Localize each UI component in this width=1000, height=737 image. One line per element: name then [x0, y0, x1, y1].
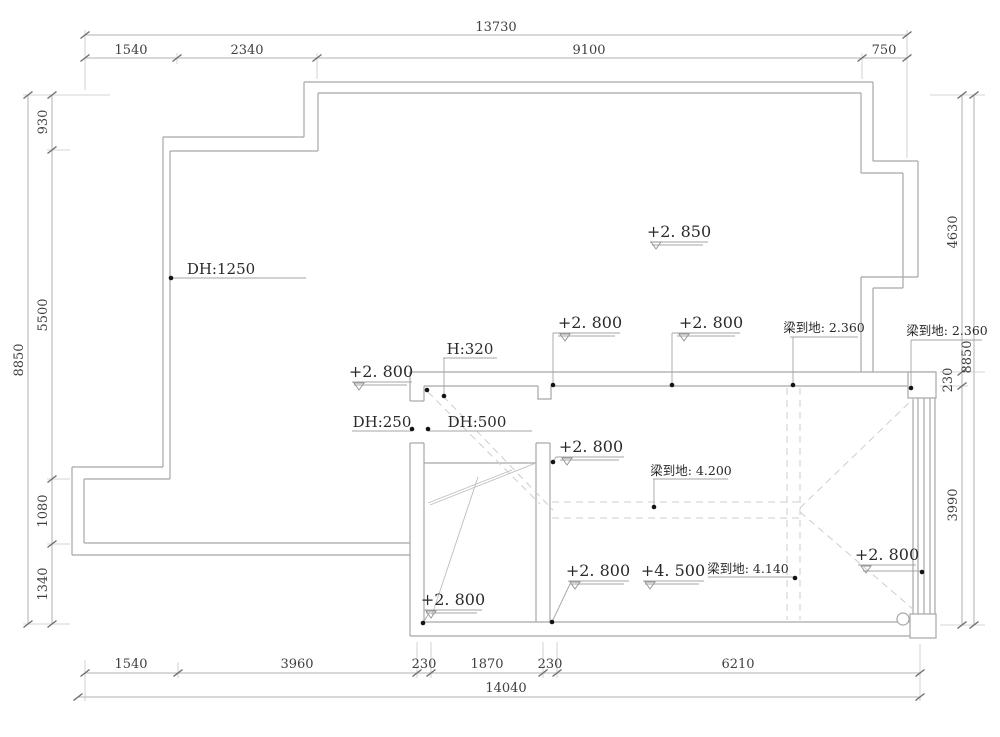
dim-left-overall: 8850 [12, 343, 27, 376]
dim-top-seg-3: 9100 [572, 43, 605, 58]
column-pier [908, 372, 936, 398]
label-beam-4140: 梁到地: 4.140 [707, 561, 789, 576]
leader-dot [670, 383, 675, 388]
annotations: DH:1250 +2. 850 +2. 800 +2. 800 梁到地: 2.3… [169, 222, 988, 625]
dim-left-seg-4: 1340 [36, 567, 51, 600]
dim-top-overall: 13730 [475, 20, 516, 35]
dim-bottom-seg-5: 230 [538, 657, 563, 672]
label-dh-1250: DH:1250 [187, 260, 255, 278]
label-h-320: H:320 [447, 340, 494, 358]
leader-dot [550, 620, 555, 625]
label-elev-2800-d: +2. 800 [559, 437, 623, 456]
dim-left: 8850 930 5500 1080 1340 [12, 92, 110, 628]
dim-right-seg-2: 230 [941, 368, 956, 393]
label-dh-500: DH:500 [448, 413, 507, 431]
dim-top-seg-4: 750 [872, 43, 897, 58]
label-elev-4500: +4. 500 [641, 561, 705, 580]
label-elev-2850: +2. 850 [647, 222, 711, 241]
leader-dot [421, 621, 426, 626]
column-pier [910, 614, 936, 638]
dim-right: 4630 230 3990 8850 [930, 92, 985, 629]
leader-dot [909, 386, 914, 391]
label-elev-2800-c: +2. 800 [349, 362, 413, 381]
label-dh-250: DH:250 [353, 413, 412, 431]
leader-dot [791, 383, 796, 388]
dim-bottom-overall: 14040 [485, 681, 526, 696]
dim-top-seg-1: 1540 [114, 43, 147, 58]
label-beam-2360-a: 梁到地: 2.360 [783, 320, 865, 335]
dim-left-seg-1: 930 [36, 110, 51, 135]
pipe-circle [897, 613, 909, 625]
door-leaf-line [428, 470, 512, 503]
dim-right-overall: 8850 [960, 340, 975, 373]
label-beam-2360-b: 梁到地: 2.360 [906, 323, 988, 338]
dim-bottom-seg-3: 230 [412, 657, 437, 672]
dim-left-seg-2: 5500 [36, 298, 51, 331]
wall-outline [72, 82, 918, 555]
label-beam-4200: 梁到地: 4.200 [650, 463, 732, 478]
dim-bottom: 1540 3960 230 1870 230 6210 14040 [74, 642, 925, 701]
leader-dot [442, 394, 447, 399]
dim-bottom-seg-1: 1540 [114, 657, 147, 672]
dim-left-seg-3: 1080 [36, 494, 51, 527]
wall-notch [538, 386, 551, 399]
dim-bottom-seg-4: 1870 [470, 657, 503, 672]
right-window-wall [897, 372, 936, 638]
label-elev-2800-g: +2. 800 [421, 590, 485, 609]
beam-dashed-line [428, 392, 540, 504]
floor-plan-drawing: 13730 1540 2340 9100 750 1540 3960 230 1… [0, 0, 1000, 737]
floor-plan-canvas: 13730 1540 2340 9100 750 1540 3960 230 1… [0, 0, 1000, 737]
leader-dot [426, 427, 431, 432]
leader-dot [793, 576, 798, 581]
leader-dot [551, 460, 556, 465]
dim-bottom-seg-2: 3960 [280, 657, 313, 672]
dim-right-seg-3: 3990 [946, 488, 961, 521]
leader-dot [920, 570, 925, 575]
dim-bottom-seg-6: 6210 [721, 657, 754, 672]
lower-rooms-walls [410, 372, 936, 636]
dim-right-seg-1: 4630 [946, 215, 961, 248]
label-elev-2800-b: +2. 800 [679, 313, 743, 332]
label-elev-2800-f: +2. 800 [855, 545, 919, 564]
door-leaf-line [430, 463, 536, 505]
beam-dashed-line [800, 398, 914, 508]
label-elev-2800-a: +2. 800 [558, 313, 622, 332]
junction-dot [425, 388, 430, 393]
dim-top-seg-2: 2340 [230, 43, 263, 58]
leader-dot [551, 383, 556, 388]
label-elev-2800-e: +2. 800 [566, 561, 630, 580]
leader-dot [652, 505, 657, 510]
leader-dot [169, 276, 174, 281]
